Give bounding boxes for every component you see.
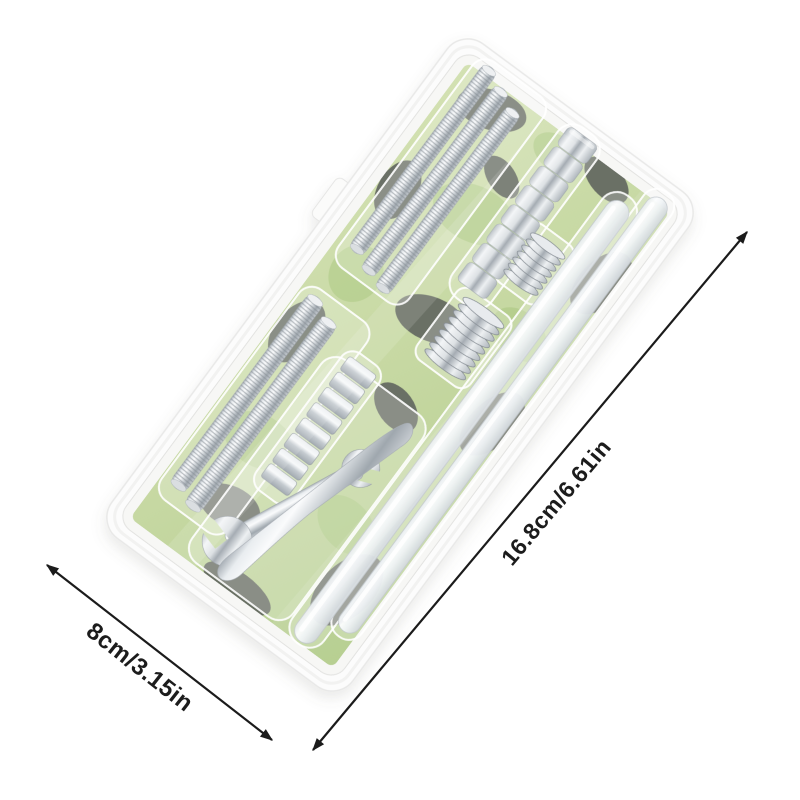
product-photo-canvas: 16.8cm/6.61in 8cm/3.15in [0,0,800,800]
product-photo-scene: 16.8cm/6.61in 8cm/3.15in [0,0,800,800]
